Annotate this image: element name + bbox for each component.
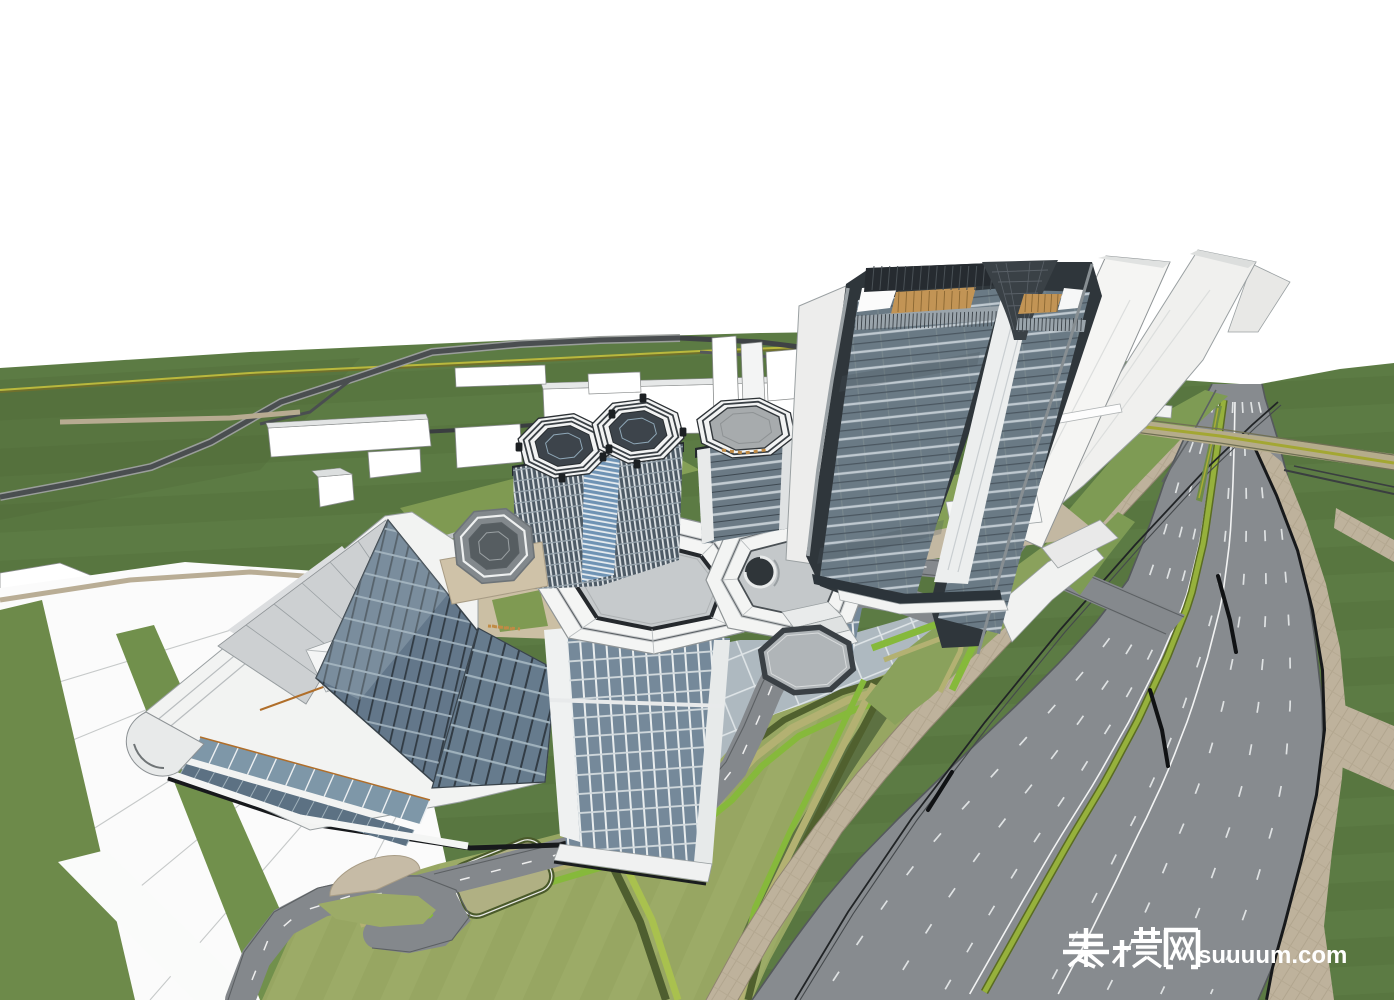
svg-text:suuuum.com: suuuum.com bbox=[1198, 942, 1347, 969]
